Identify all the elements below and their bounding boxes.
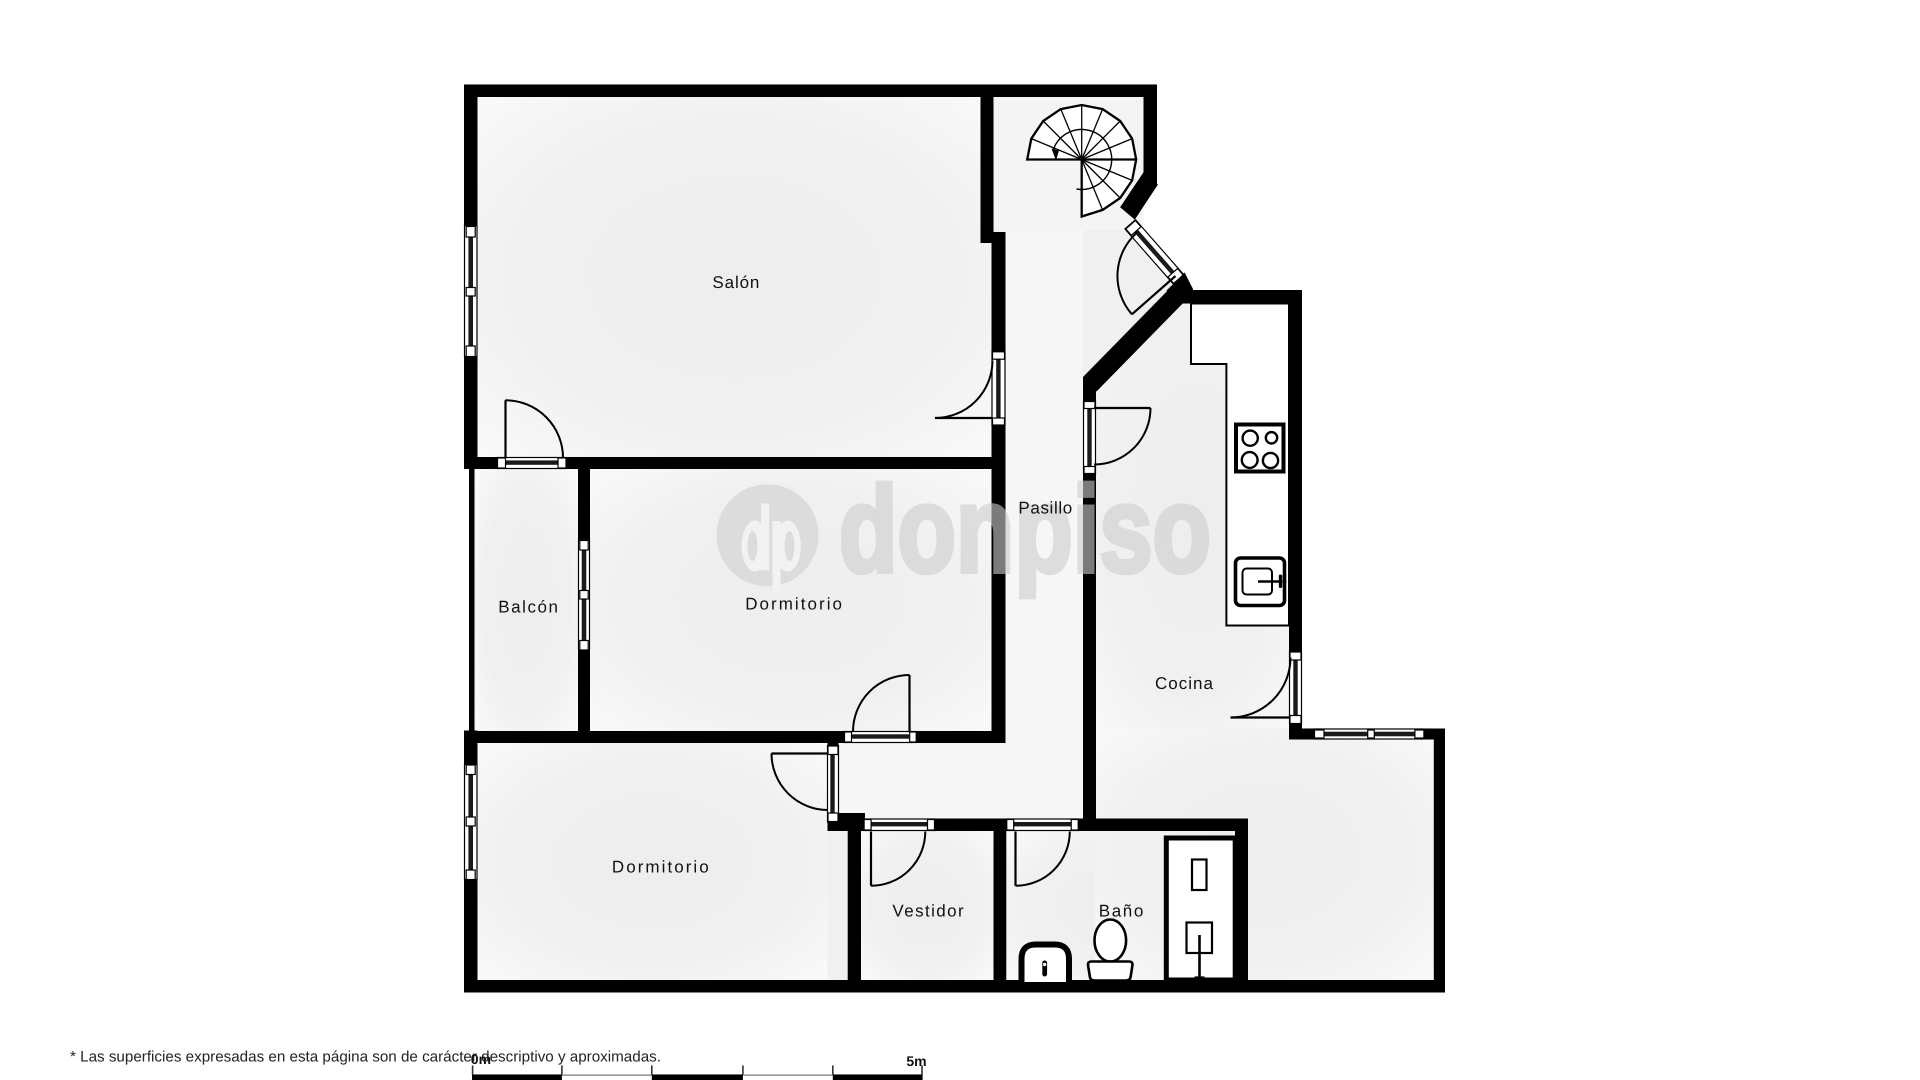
svg-text:Pasillo: Pasillo — [1018, 499, 1072, 518]
svg-text:5m: 5m — [906, 1053, 926, 1069]
svg-text:donpiso: donpiso — [839, 461, 1211, 597]
svg-text:Salón: Salón — [712, 273, 759, 292]
svg-text:* Las superficies expresadas e: * Las superficies expresadas en esta pág… — [70, 1049, 661, 1066]
svg-text:Baño: Baño — [1099, 902, 1144, 921]
svg-text:Balcón: Balcón — [498, 598, 558, 617]
svg-text:0m: 0m — [471, 1051, 491, 1067]
svg-text:Cocina: Cocina — [1155, 674, 1214, 693]
